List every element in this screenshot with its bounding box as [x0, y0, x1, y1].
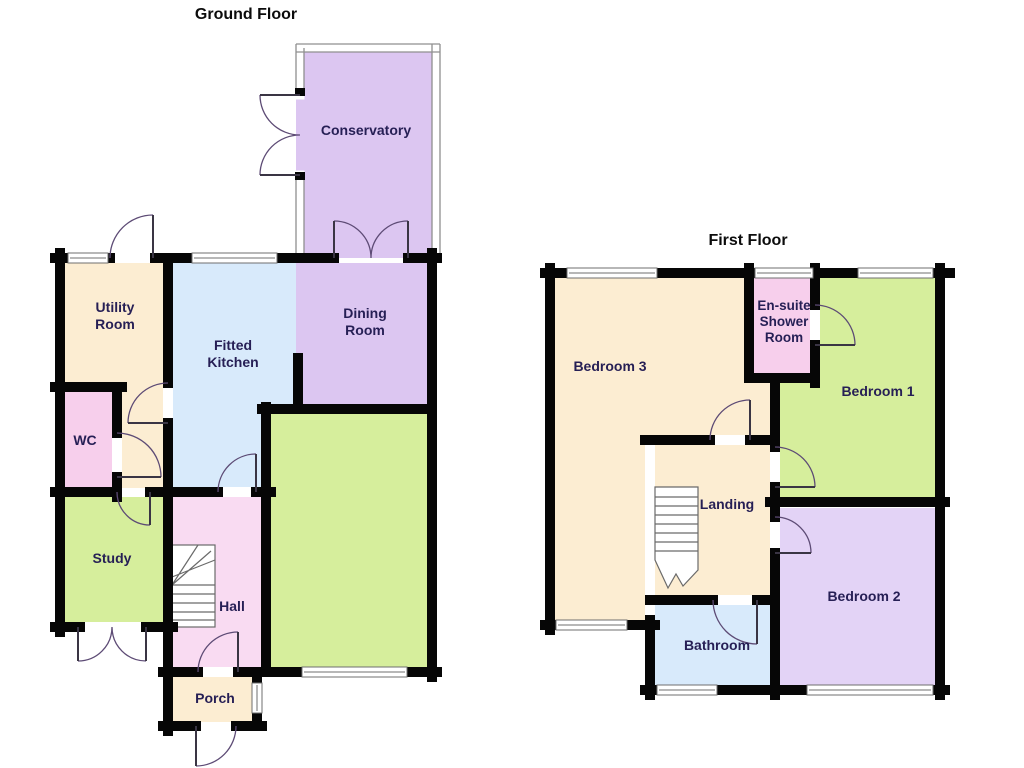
window [252, 683, 262, 713]
stairs-first [655, 487, 698, 588]
room-label-utility: UtilityRoom [95, 299, 135, 332]
room-label-bathroom: Bathroom [684, 637, 750, 653]
room-label-conservatory: Conservatory [321, 122, 411, 138]
window [657, 685, 717, 695]
window [192, 253, 277, 263]
room-label-bedroom-1: Bedroom 1 [841, 383, 914, 399]
window [567, 268, 657, 278]
ground-floor-title: Ground Floor [195, 6, 297, 23]
window [807, 685, 933, 695]
room-label-hall: Hall [219, 598, 245, 614]
window [755, 268, 813, 278]
room-label-en-suite: En-suiteShowerRoom [757, 298, 811, 345]
window [556, 620, 627, 630]
room-label-porch: Porch [195, 690, 235, 706]
room-conservatory [296, 48, 436, 258]
window [68, 253, 108, 263]
room-label-fitted-kitchen: FittedKitchen [207, 337, 258, 370]
window [858, 268, 933, 278]
floor-plan: Ground Floor First Floor Conservatory Ut… [0, 0, 1024, 768]
room-label-dining: DiningRoom [343, 305, 387, 338]
room-label-bedroom-3: Bedroom 3 [573, 358, 646, 374]
stairs-ground [172, 545, 215, 627]
room-lounge-unlabelled [271, 409, 432, 667]
floorplan-canvas: Ground Floor First Floor Conservatory Ut… [0, 0, 1024, 768]
room-label-landing: Landing [700, 496, 754, 512]
first-floor-title: First Floor [708, 232, 787, 249]
room-label-bedroom-2: Bedroom 2 [827, 588, 900, 604]
room-label-wc: WC [73, 432, 96, 448]
room-label-study: Study [93, 550, 132, 566]
window [302, 667, 407, 677]
